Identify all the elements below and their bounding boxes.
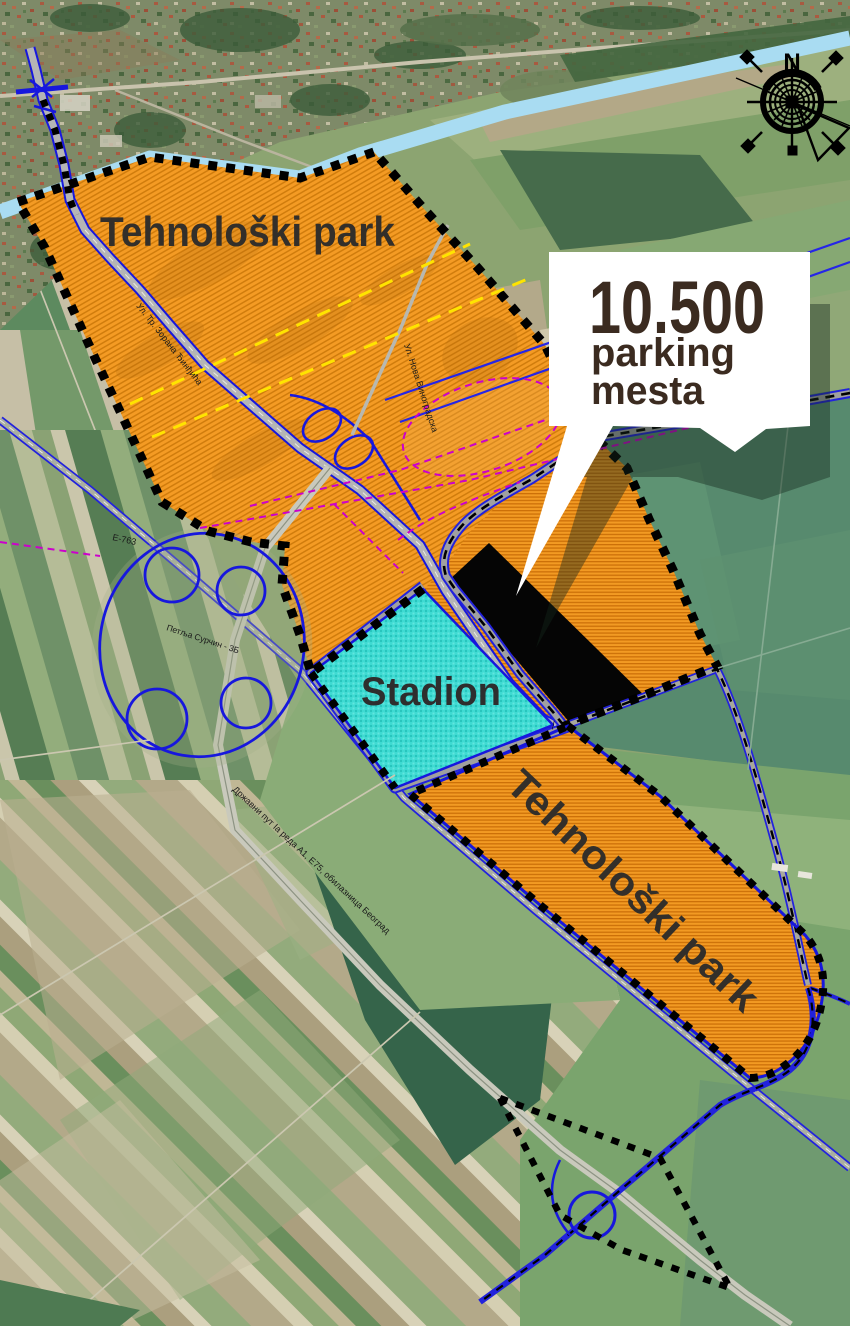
svg-text:Stadion: Stadion [361,670,501,714]
svg-text:Tehnološki park: Tehnološki park [100,208,396,255]
svg-text:mesta: mesta [591,369,705,413]
svg-text:N: N [783,49,800,76]
